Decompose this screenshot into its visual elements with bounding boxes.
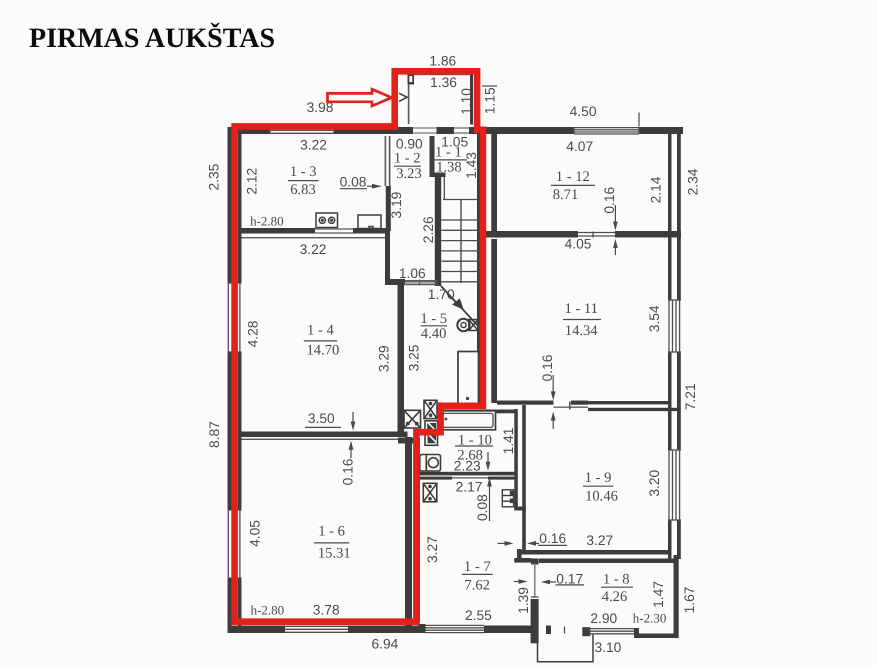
svg-text:4.40: 4.40 — [421, 326, 447, 342]
svg-text:3.19: 3.19 — [389, 191, 404, 218]
svg-text:1.38: 1.38 — [436, 160, 462, 176]
svg-text:2.26: 2.26 — [421, 216, 436, 243]
svg-text:1.67: 1.67 — [682, 587, 697, 614]
svg-text:7.62: 7.62 — [464, 578, 490, 594]
svg-text:8.71: 8.71 — [553, 187, 579, 203]
svg-text:h-2.30: h-2.30 — [633, 610, 667, 625]
svg-text:1.47: 1.47 — [651, 581, 666, 608]
svg-text:6.94: 6.94 — [371, 637, 398, 652]
svg-text:4.05: 4.05 — [248, 520, 263, 547]
svg-text:4.50: 4.50 — [570, 104, 597, 119]
svg-text:1.36: 1.36 — [430, 75, 457, 90]
svg-text:1 - 6: 1 - 6 — [318, 524, 345, 540]
svg-text:0.16: 0.16 — [539, 531, 566, 546]
svg-text:1 - 4: 1 - 4 — [307, 323, 334, 339]
svg-text:h-2.80: h-2.80 — [250, 213, 284, 228]
svg-text:1 - 2: 1 - 2 — [394, 151, 421, 167]
svg-text:15.31: 15.31 — [318, 545, 351, 561]
svg-text:2.35: 2.35 — [206, 163, 221, 190]
svg-text:0.08: 0.08 — [340, 175, 367, 190]
svg-text:2.12: 2.12 — [245, 168, 260, 195]
svg-text:3.78: 3.78 — [313, 602, 340, 617]
svg-text:4.28: 4.28 — [246, 320, 261, 347]
svg-text:1.39: 1.39 — [516, 587, 531, 614]
svg-text:3.10: 3.10 — [594, 640, 621, 655]
svg-text:h-2.80: h-2.80 — [251, 603, 285, 618]
svg-text:6.83: 6.83 — [290, 182, 316, 198]
svg-text:3.20: 3.20 — [647, 469, 662, 496]
svg-text:1 - 11: 1 - 11 — [564, 301, 598, 317]
svg-text:4.26: 4.26 — [602, 589, 628, 605]
svg-text:1 - 7: 1 - 7 — [464, 559, 491, 575]
svg-text:2.90: 2.90 — [590, 611, 617, 626]
svg-text:1.43: 1.43 — [464, 152, 479, 179]
svg-text:1.06: 1.06 — [399, 266, 426, 281]
svg-text:8.87: 8.87 — [207, 421, 222, 448]
svg-text:7.21: 7.21 — [683, 383, 698, 410]
svg-text:1 - 9: 1 - 9 — [585, 470, 612, 486]
svg-text:3.23: 3.23 — [396, 166, 422, 182]
svg-text:3.54: 3.54 — [647, 305, 662, 332]
svg-text:3.27: 3.27 — [425, 536, 440, 563]
svg-text:0.16: 0.16 — [341, 458, 356, 485]
svg-text:3.50: 3.50 — [308, 411, 335, 426]
svg-text:0.16: 0.16 — [602, 186, 617, 213]
svg-text:1.86: 1.86 — [429, 54, 456, 69]
svg-text:1 - 5: 1 - 5 — [420, 311, 447, 327]
svg-text:2.23: 2.23 — [454, 458, 481, 473]
svg-text:PIRMAS AUKŠTAS: PIRMAS AUKŠTAS — [29, 22, 275, 54]
svg-text:1 - 1: 1 - 1 — [435, 145, 462, 161]
svg-text:1.15: 1.15 — [483, 87, 498, 114]
svg-text:1 - 8: 1 - 8 — [603, 572, 630, 588]
svg-text:0.90: 0.90 — [396, 136, 423, 151]
svg-text:14.70: 14.70 — [306, 343, 339, 359]
svg-text:2.34: 2.34 — [685, 168, 700, 195]
svg-text:1.70: 1.70 — [428, 287, 455, 302]
svg-text:0.17: 0.17 — [556, 572, 583, 587]
svg-text:4.05: 4.05 — [565, 236, 592, 251]
svg-text:2.17: 2.17 — [456, 479, 483, 494]
svg-text:0.08: 0.08 — [475, 494, 490, 521]
svg-text:3.29: 3.29 — [377, 345, 392, 372]
svg-text:0.16: 0.16 — [540, 354, 555, 381]
svg-text:14.34: 14.34 — [565, 323, 599, 339]
svg-text:2.14: 2.14 — [648, 176, 663, 203]
svg-text:3.27: 3.27 — [586, 533, 613, 548]
svg-text:2.55: 2.55 — [465, 608, 492, 623]
svg-text:1 - 3: 1 - 3 — [290, 164, 317, 180]
svg-text:1.10: 1.10 — [459, 88, 474, 115]
svg-text:10.46: 10.46 — [585, 489, 618, 505]
svg-text:3.25: 3.25 — [407, 344, 422, 371]
svg-text:3.22: 3.22 — [300, 242, 327, 257]
svg-text:4.07: 4.07 — [566, 139, 593, 154]
svg-text:1.41: 1.41 — [501, 428, 516, 455]
svg-text:3.22: 3.22 — [300, 138, 327, 153]
svg-text:1 - 12: 1 - 12 — [556, 169, 590, 185]
